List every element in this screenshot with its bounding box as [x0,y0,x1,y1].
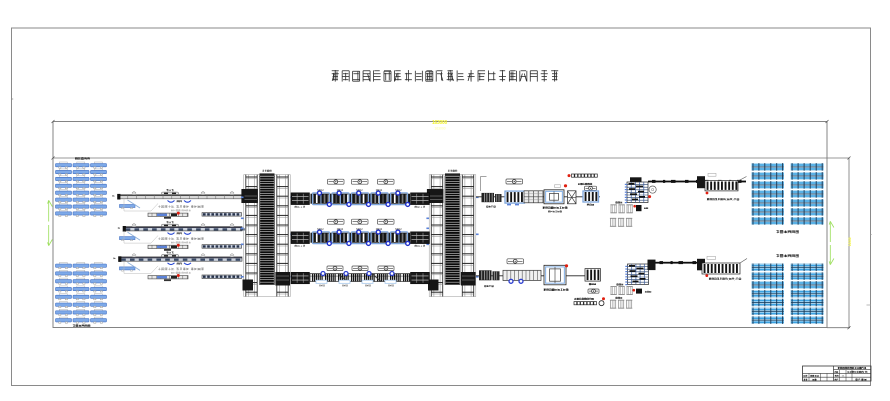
svg-text:M#12: M#12 [356,188,363,192]
svg-text:(: ( [726,197,727,201]
svg-text:(: ( [728,277,729,281]
svg-text:): ) [734,277,735,281]
svg-text:M#08: M#08 [319,285,326,288]
svg-text:M#12: M#12 [317,227,324,231]
svg-text:163000: 163000 [432,120,447,126]
svg-text:16300: 16300 [848,237,852,246]
svg-text:M#12: M#12 [395,227,402,231]
svg-text:M#12: M#12 [376,188,383,192]
svg-text:M#12: M#12 [337,227,344,231]
svg-text:163000: 163000 [434,126,445,130]
svg-text:M#12: M#12 [395,188,402,192]
svg-text:M#12: M#12 [376,227,383,231]
svg-text:M#08: M#08 [388,285,395,288]
svg-text:M#12: M#12 [317,188,324,192]
svg-text:M#12: M#12 [337,188,344,192]
svg-text:M#08: M#08 [342,285,349,288]
svg-text:): ) [732,197,733,201]
svg-text:M#12: M#12 [356,227,363,231]
svg-text:M#08: M#08 [365,285,372,288]
